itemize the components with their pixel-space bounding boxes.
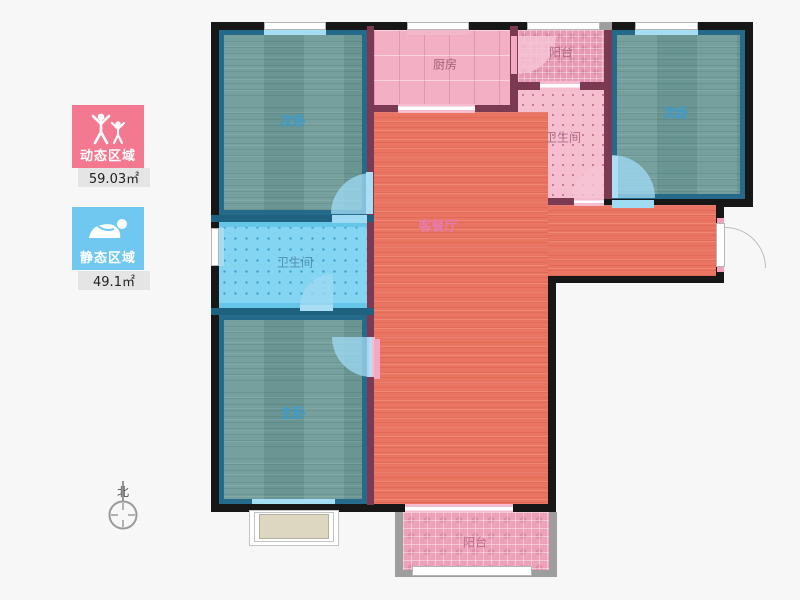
dynamic-area-value: 59.03㎡ [89,168,139,187]
north-compass: 北 [103,478,143,534]
room-living-dining-main [374,112,548,504]
wall-left [211,22,219,512]
wall-right-upper [745,22,753,207]
window-balcony-bathroom [540,81,580,91]
balcony-bottom-wall-right [549,512,557,577]
sill-bedroom-tr [635,30,698,35]
entrance-door [716,223,725,267]
door-slab-bathroom-left [300,305,333,311]
door-slab-master [374,339,380,379]
opening-kitchen-living [398,104,475,113]
wall-step-lower [548,276,724,283]
door-slab-bedroom-tr [612,156,618,198]
wall-bathroom1-bottom [211,308,374,315]
resting-person-icon [85,214,131,244]
label-kitchen: 厨房 [433,56,457,73]
window-kitchen [407,22,469,30]
bathroom-left-tile-band-bottom [219,303,367,308]
door-slab-bedroom-tl [366,172,373,214]
room-living-dining-hall [548,205,716,276]
wall-bathroom-bedroom [604,26,612,207]
opening-bathroom-tr-door [574,198,604,206]
compass-north-text: 北 [117,485,129,499]
sill-master-bottom [252,499,335,504]
static-area-value: 49.1㎡ [93,271,135,290]
opening-bedroom-tr-door [612,200,654,208]
entrance-jamb-top [717,218,724,223]
label-balcony-bottom: 阳台 [463,534,487,551]
window-bedroom-tr [635,22,698,30]
window-bathroom-left [211,228,219,266]
window-bedroom-tl [264,22,326,30]
cheering-people-icon [86,112,130,146]
label-bedroom-top-left: 次卧 [280,111,306,130]
label-bathroom-left: 卫生间 [277,254,313,271]
label-bathroom-top-right: 卫生间 [545,129,581,146]
door-slab-kitchen-balcony [511,36,517,74]
wall-grey-segment [600,22,612,30]
legend-static-area: 静态区域 [72,207,144,270]
sill-bedroom-tl [264,30,326,35]
sill-bathroom-left [219,228,224,266]
balcony-bottom-wall-left [395,512,403,577]
legend-dynamic-area: 动态区域 [72,105,144,168]
floor-plan-canvas: 动态区域 59.03㎡ 静态区域 49.1㎡ [0,0,800,600]
legend-dynamic-value: 59.03㎡ [78,168,150,187]
entrance-door-arc [725,227,766,268]
legend-static-label: 静态区域 [80,252,136,265]
bay-window-seat [259,514,329,539]
label-living-dining: 客餐厅 [418,216,457,235]
entrance-jamb-bottom [717,267,724,272]
wall-right-lower [548,276,556,512]
label-balcony-top: 阳台 [549,44,573,61]
balcony-bottom-window [412,566,532,576]
opening-bedroom-tl-door [332,215,367,223]
legend-dynamic-label: 动态区域 [80,150,136,163]
wall-left-column-right [367,26,374,505]
legend-static-value: 49.1㎡ [78,271,150,290]
sill-kitchen [407,30,469,35]
label-bedroom-top-right: 次卧 [663,103,689,122]
label-master-bedroom: 主卧 [280,403,306,422]
window-balcony-top [527,22,600,30]
